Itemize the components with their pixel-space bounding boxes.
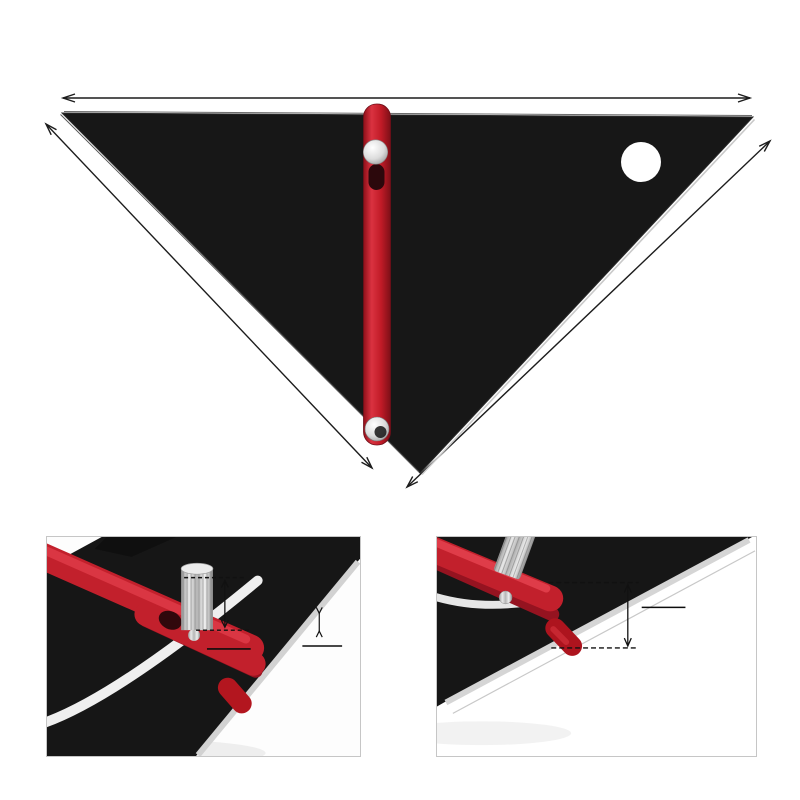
inset-photo-pin-height [46,536,361,757]
inset-left-svg [47,537,360,756]
red-setting-arm [363,104,390,445]
hang-hole [621,142,661,182]
inset-right-svg [437,537,756,756]
knurled-pin [181,563,213,630]
red-pin-below [228,688,242,704]
dimension-top [63,94,750,102]
pin-ball [499,591,512,604]
pin-tip [188,629,200,641]
red-pin-below [553,628,572,646]
rivet-shadow [375,426,387,438]
main-square-diagram [0,0,800,530]
slider-knob [363,140,387,164]
arm-adjust-slot [369,164,385,190]
product-dimension-diagram [0,0,800,800]
inset-photo-pin-depth [436,536,757,757]
